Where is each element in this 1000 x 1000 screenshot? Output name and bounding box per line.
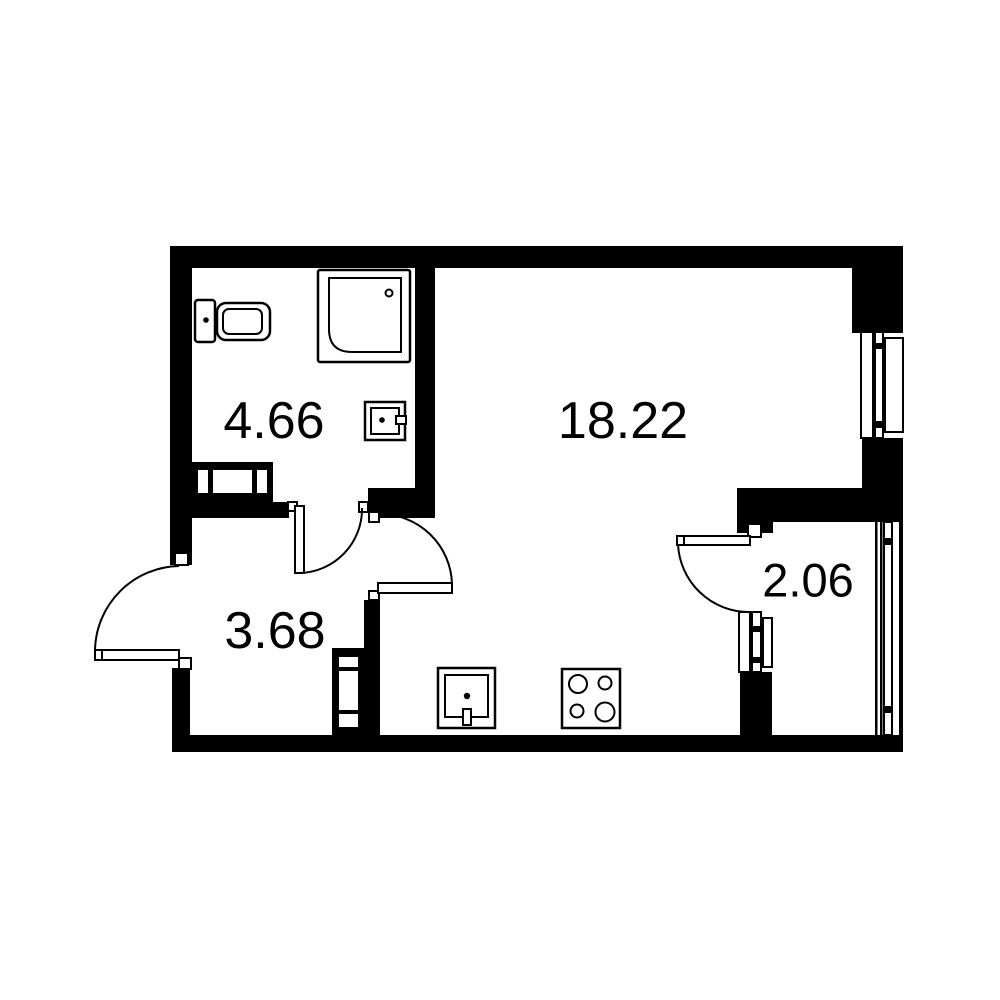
window-inner-frame xyxy=(739,612,750,672)
wall-balcony-outer-edge xyxy=(899,522,903,735)
glazing-line xyxy=(880,522,883,735)
jamb-entrance-top xyxy=(175,553,188,565)
floor-plan: 4.66 18.22 3.68 2.06 xyxy=(0,0,1000,1000)
balcony-glazing-icon xyxy=(875,522,892,735)
toilet-icon xyxy=(195,300,270,342)
wall-bathroom-south xyxy=(192,502,289,518)
door-leaf xyxy=(95,650,179,660)
door-swing-arc xyxy=(380,514,452,584)
balcony-area-label: 2.06 xyxy=(762,554,853,607)
wall-ne-corner xyxy=(852,246,903,333)
living-room-area-label: 18.22 xyxy=(558,392,688,450)
door-leaf xyxy=(378,583,452,593)
door-swing-arc xyxy=(300,508,362,573)
bathroom-door-icon xyxy=(295,506,362,573)
balcony-door-icon xyxy=(677,536,750,612)
window-glazing-tick xyxy=(752,626,761,632)
window-inner-frame xyxy=(861,332,873,438)
balcony-window-icon xyxy=(739,612,772,672)
bathroom-area-label: 4.66 xyxy=(223,392,324,450)
radiator-slot xyxy=(339,671,358,710)
radiator-slot xyxy=(213,470,252,493)
window-icon xyxy=(861,332,903,438)
wall-balcony-west xyxy=(740,672,772,735)
radiator-slot xyxy=(339,714,358,727)
glazing-tick xyxy=(884,538,892,545)
glazing-band xyxy=(884,522,892,735)
wall-room-balcony xyxy=(737,488,903,522)
stove-icon xyxy=(562,669,620,728)
walls xyxy=(170,246,903,752)
door-leaf xyxy=(295,506,304,573)
kitchen-sink-icon xyxy=(438,668,495,728)
shower-tray xyxy=(318,270,410,362)
wall-left-upper xyxy=(170,246,192,565)
window-outer-sill xyxy=(885,338,903,432)
hallway-area-label: 3.68 xyxy=(224,602,325,660)
wall-hallway-east xyxy=(364,600,380,735)
radiator-slot xyxy=(198,470,208,493)
mainroom-door-icon xyxy=(378,514,452,593)
glazing-line xyxy=(875,522,878,735)
window-glazing-tick xyxy=(752,657,761,663)
entrance-door-icon xyxy=(95,566,179,660)
jamb-mainroom-top xyxy=(369,512,379,522)
door-swing-arc xyxy=(678,544,749,612)
window-outer-sill xyxy=(763,618,772,667)
washbasin-drain xyxy=(379,417,385,423)
shower-icon xyxy=(318,270,410,362)
hallway-radiator-icon xyxy=(332,648,366,735)
wall-top xyxy=(170,246,903,268)
door-swing-arc xyxy=(95,566,179,649)
door-leaf xyxy=(677,536,750,545)
toilet-tank-button xyxy=(203,317,209,323)
wall-bathroom-east xyxy=(415,268,435,488)
window-glazing-tick xyxy=(875,421,883,428)
sink-tap xyxy=(463,709,471,725)
wall-bottom xyxy=(172,735,903,752)
washbasin-icon xyxy=(365,402,406,440)
floor-plan-drawing: 4.66 18.22 3.68 2.06 xyxy=(0,0,1000,1000)
jamb-entrance-bottom xyxy=(179,658,191,669)
sink-drain xyxy=(464,693,470,699)
radiator-slot xyxy=(339,657,358,667)
washbasin-tap xyxy=(396,416,406,424)
bathroom-radiator-icon xyxy=(190,462,273,502)
window-glazing-tick xyxy=(875,343,883,349)
jamb-bathroom-right xyxy=(359,502,368,512)
radiator-slot xyxy=(257,470,267,493)
glazing-tick xyxy=(884,706,892,713)
